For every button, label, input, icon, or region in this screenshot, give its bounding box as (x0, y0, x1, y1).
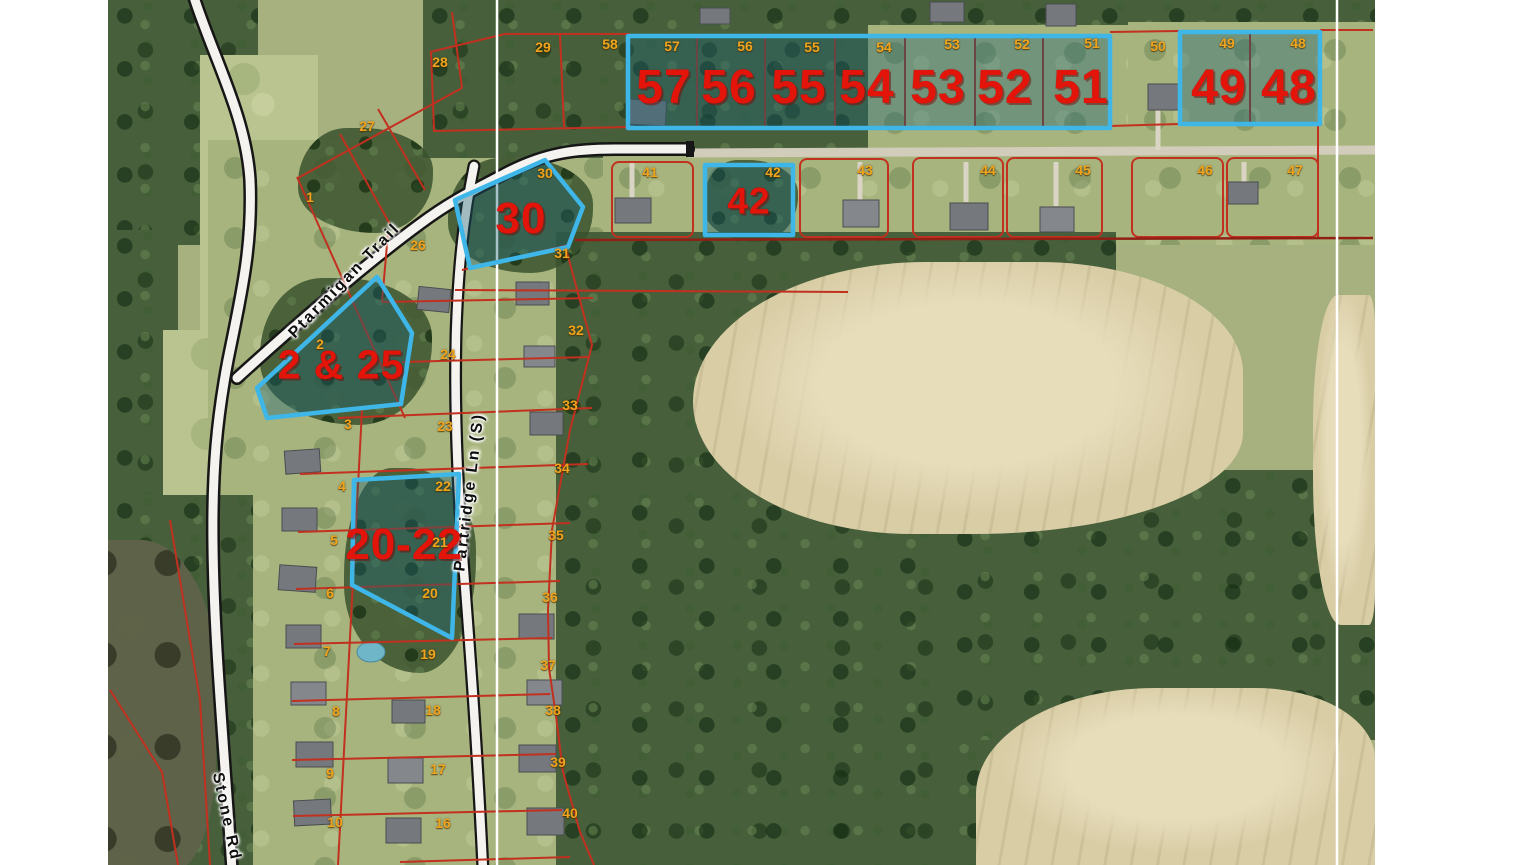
road-dead-end-cap (686, 141, 694, 157)
aerial-parcel-map: Ptarmigan Trail Partridge Ln (S) Stone R… (0, 0, 1536, 865)
lot-number: 41 (642, 165, 658, 179)
lot-number: 42 (765, 165, 781, 179)
lot-number: 2 (316, 337, 324, 351)
lot-number: 43 (857, 163, 873, 177)
lot-number: 7 (323, 644, 331, 658)
lot-number: 18 (425, 703, 441, 717)
parcel-number-49: 49 (1191, 64, 1246, 112)
parcel-number-48: 48 (1261, 64, 1316, 112)
lot-number: 26 (410, 238, 426, 252)
parcel-number-51: 51 (1053, 64, 1108, 112)
lot-number: 35 (548, 528, 564, 542)
lot-number: 16 (435, 816, 451, 830)
lot-number: 4 (338, 479, 346, 493)
lot-number: 53 (944, 37, 960, 51)
lot-number: 51 (1084, 36, 1100, 50)
parcel-number-56: 56 (701, 64, 756, 112)
lot-number: 47 (1287, 163, 1303, 177)
lot-number: 23 (437, 419, 453, 433)
swimming-pool (357, 642, 385, 662)
lot-number: 49 (1219, 36, 1235, 50)
lot-number: 22 (435, 479, 451, 493)
lot-number: 36 (542, 590, 558, 604)
lot-number: 33 (562, 398, 578, 412)
lot-number: 32 (568, 323, 584, 337)
lot-number: 50 (1150, 39, 1166, 53)
lot-number: 54 (876, 40, 892, 54)
lot-number: 6 (326, 586, 334, 600)
lot-number: 38 (545, 703, 561, 717)
lot-number: 20 (422, 586, 438, 600)
lot-number: 56 (737, 39, 753, 53)
lot-number: 19 (420, 647, 436, 661)
lot-number: 28 (432, 55, 448, 69)
lot-number: 58 (602, 37, 618, 51)
lot-number: 55 (804, 40, 820, 54)
lot-number: 48 (1290, 36, 1306, 50)
parcel-number-52: 52 (977, 64, 1032, 112)
lot-number: 57 (664, 39, 680, 53)
section-boundary-line (575, 238, 1373, 240)
parcel-number-54: 54 (839, 64, 894, 112)
lot-number: 21 (432, 535, 448, 549)
lot-number: 24 (440, 347, 456, 361)
lot-number: 46 (1197, 163, 1213, 177)
lot-number: 9 (326, 766, 334, 780)
lot-number: 8 (332, 704, 340, 718)
parcel-number-2-25: 2 & 25 (278, 345, 405, 386)
parcel-number-53: 53 (910, 64, 965, 112)
lot-number: 34 (554, 461, 570, 475)
map-overlay (0, 0, 1536, 865)
lot-number: 5 (330, 533, 338, 547)
lot-number: 29 (535, 40, 551, 54)
parcel-lines (110, 12, 1373, 865)
lot-number: 37 (540, 658, 556, 672)
parcel-number-42: 42 (727, 183, 770, 220)
lot-number: 10 (327, 815, 343, 829)
lot-number: 31 (554, 246, 570, 260)
lot-number: 39 (550, 755, 566, 769)
lot-number: 30 (537, 166, 553, 180)
lot-number: 40 (562, 806, 578, 820)
parcel-number-57: 57 (636, 64, 691, 112)
lot-number: 52 (1014, 37, 1030, 51)
parcel-number-30: 30 (496, 197, 547, 241)
lot-number: 3 (344, 417, 352, 431)
lot-number: 1 (306, 190, 314, 204)
lot-number: 27 (359, 119, 375, 133)
gravel-road (688, 150, 1375, 153)
lot-number: 45 (1075, 163, 1091, 177)
lot-number: 44 (980, 163, 996, 177)
parcel-number-55: 55 (771, 64, 826, 112)
lot-number: 17 (430, 762, 446, 776)
